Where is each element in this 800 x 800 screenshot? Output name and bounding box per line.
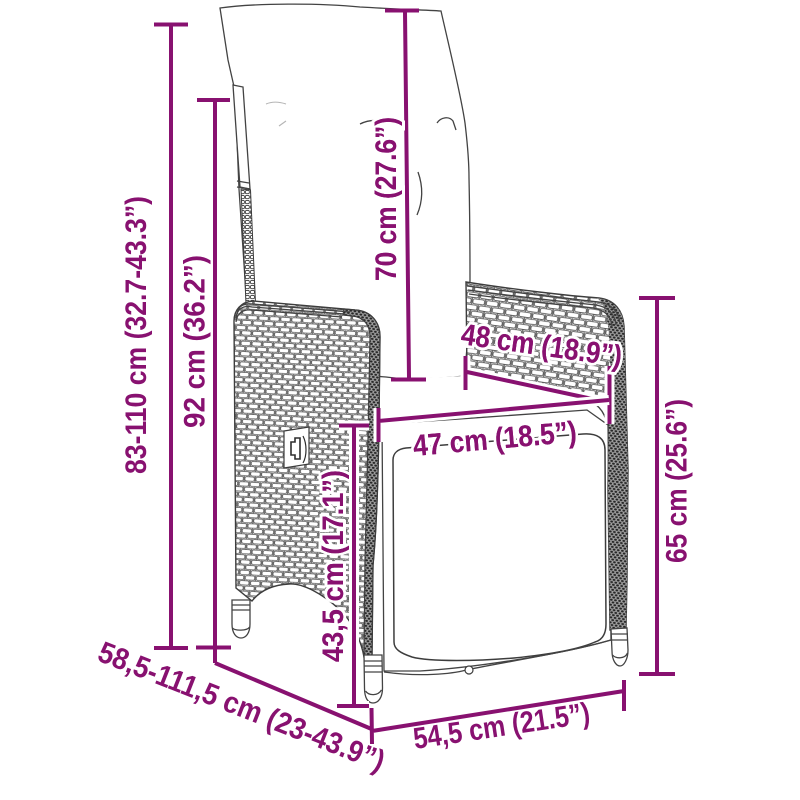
svg-text:70 cm (27.6”): 70 cm (27.6”) [370, 117, 403, 281]
svg-text:83-110 cm (32.7-43.3”): 83-110 cm (32.7-43.3”) [120, 196, 153, 474]
svg-text:65 cm (25.6”): 65 cm (25.6”) [661, 399, 694, 563]
svg-text:92 cm (36.2”): 92 cm (36.2”) [179, 255, 212, 428]
svg-text:43,5 cm (17.1”): 43,5 cm (17.1”) [317, 470, 350, 662]
